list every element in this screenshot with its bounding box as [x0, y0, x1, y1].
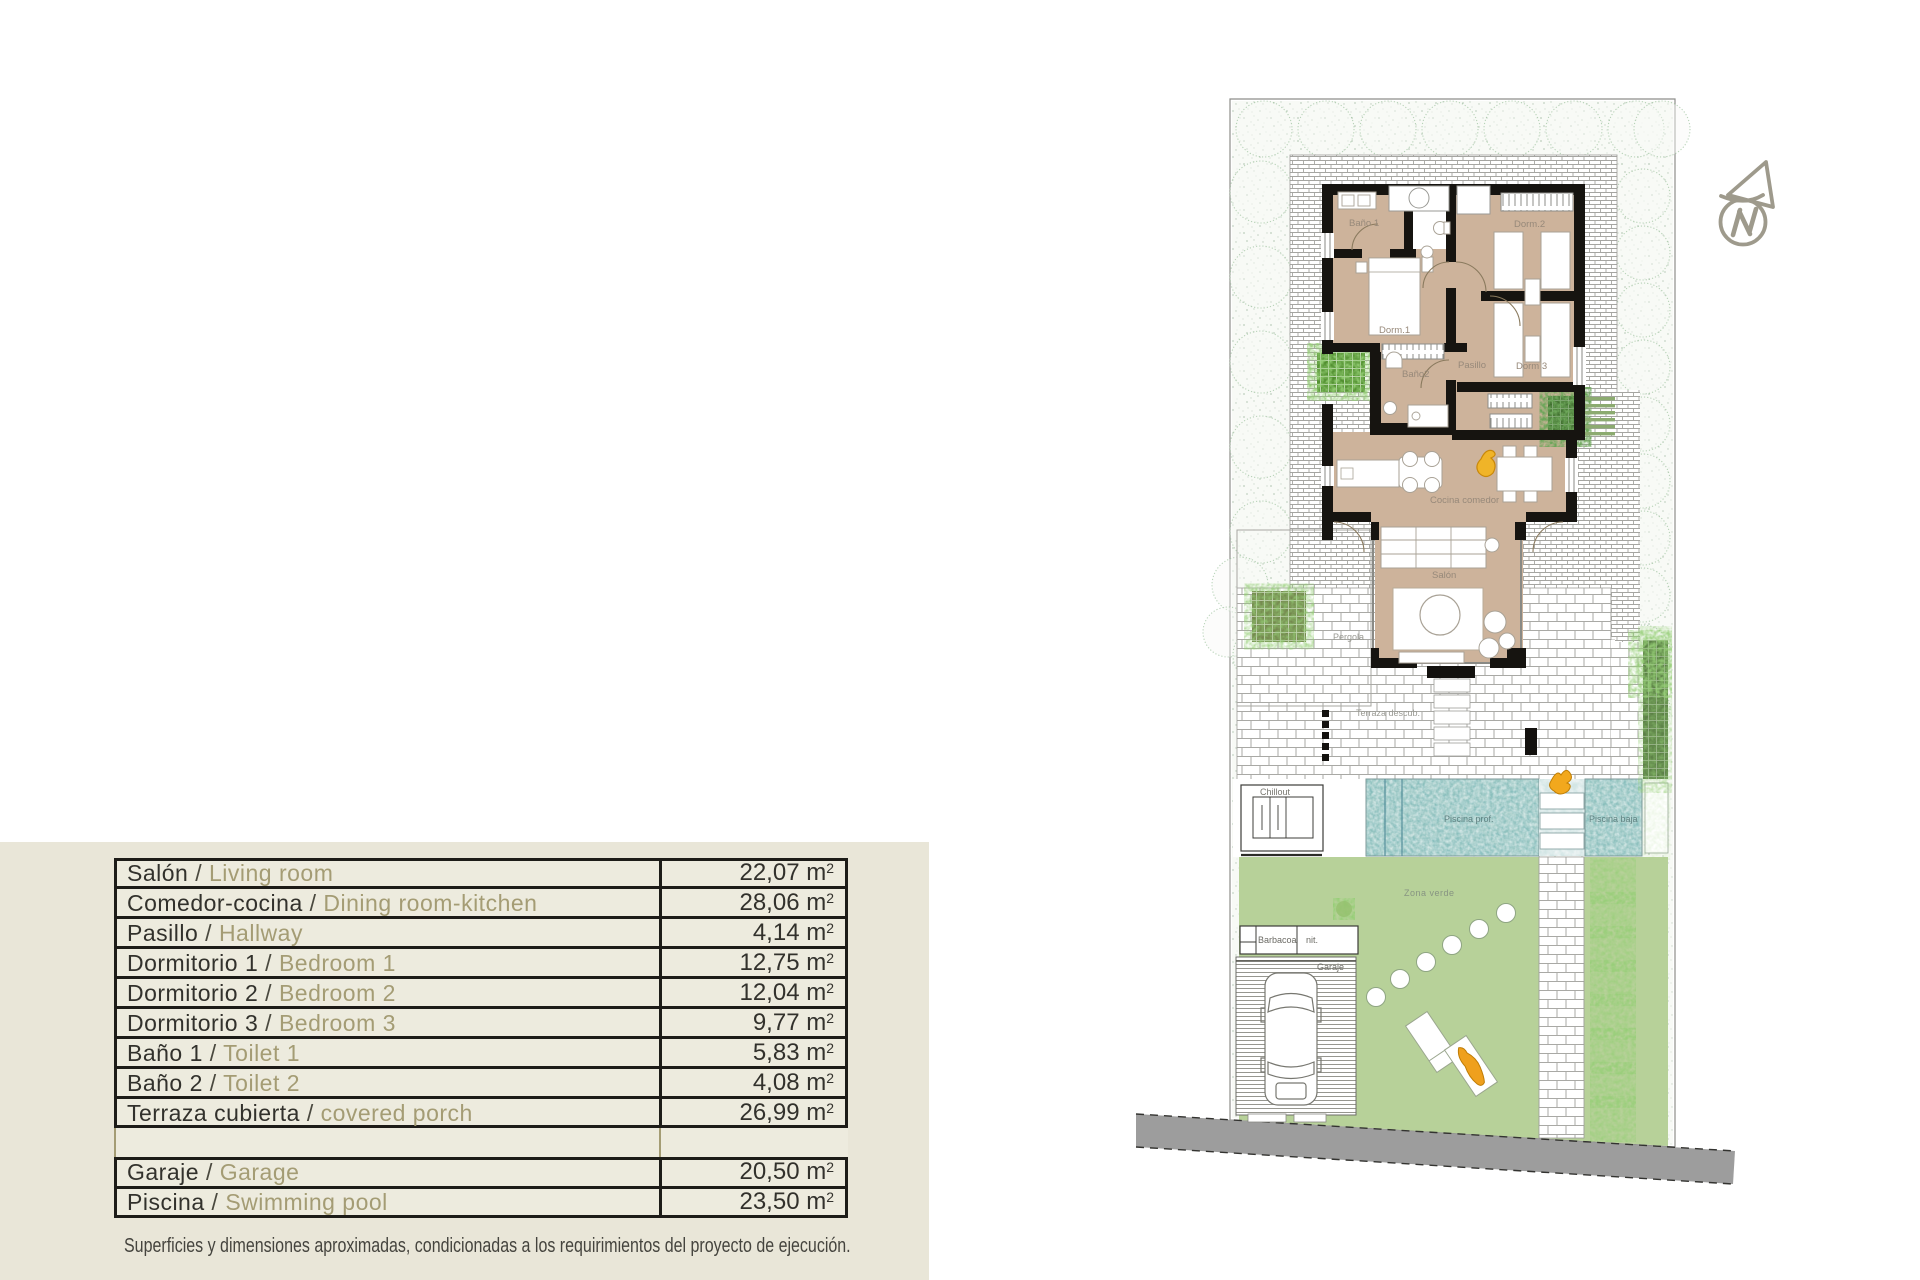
- svg-text:nit.: nit.: [1306, 935, 1318, 945]
- svg-text:Garaje: Garaje: [1317, 962, 1344, 972]
- svg-text:Chillout: Chillout: [1260, 787, 1291, 797]
- svg-text:Cocina comedor: Cocina comedor: [1430, 495, 1499, 506]
- svg-text:Zona verde: Zona verde: [1404, 888, 1455, 898]
- svg-text:Pergola: Pergola: [1333, 632, 1364, 642]
- svg-text:Baño2: Baño2: [1402, 369, 1429, 380]
- svg-text:Piscina baja: Piscina baja: [1589, 814, 1638, 824]
- svg-text:Piscina prof.: Piscina prof.: [1444, 814, 1494, 824]
- svg-text:Pasillo: Pasillo: [1458, 360, 1486, 371]
- svg-text:Dorm 3: Dorm 3: [1516, 361, 1547, 372]
- svg-text:Dorm.1: Dorm.1: [1379, 325, 1410, 336]
- svg-text:Dorm.2: Dorm.2: [1514, 219, 1545, 230]
- svg-text:Baño 1: Baño 1: [1349, 218, 1379, 229]
- svg-text:Terraza descub.: Terraza descub.: [1356, 708, 1420, 718]
- svg-text:Barbacoa: Barbacoa: [1258, 935, 1297, 945]
- svg-text:Salón: Salón: [1432, 570, 1456, 581]
